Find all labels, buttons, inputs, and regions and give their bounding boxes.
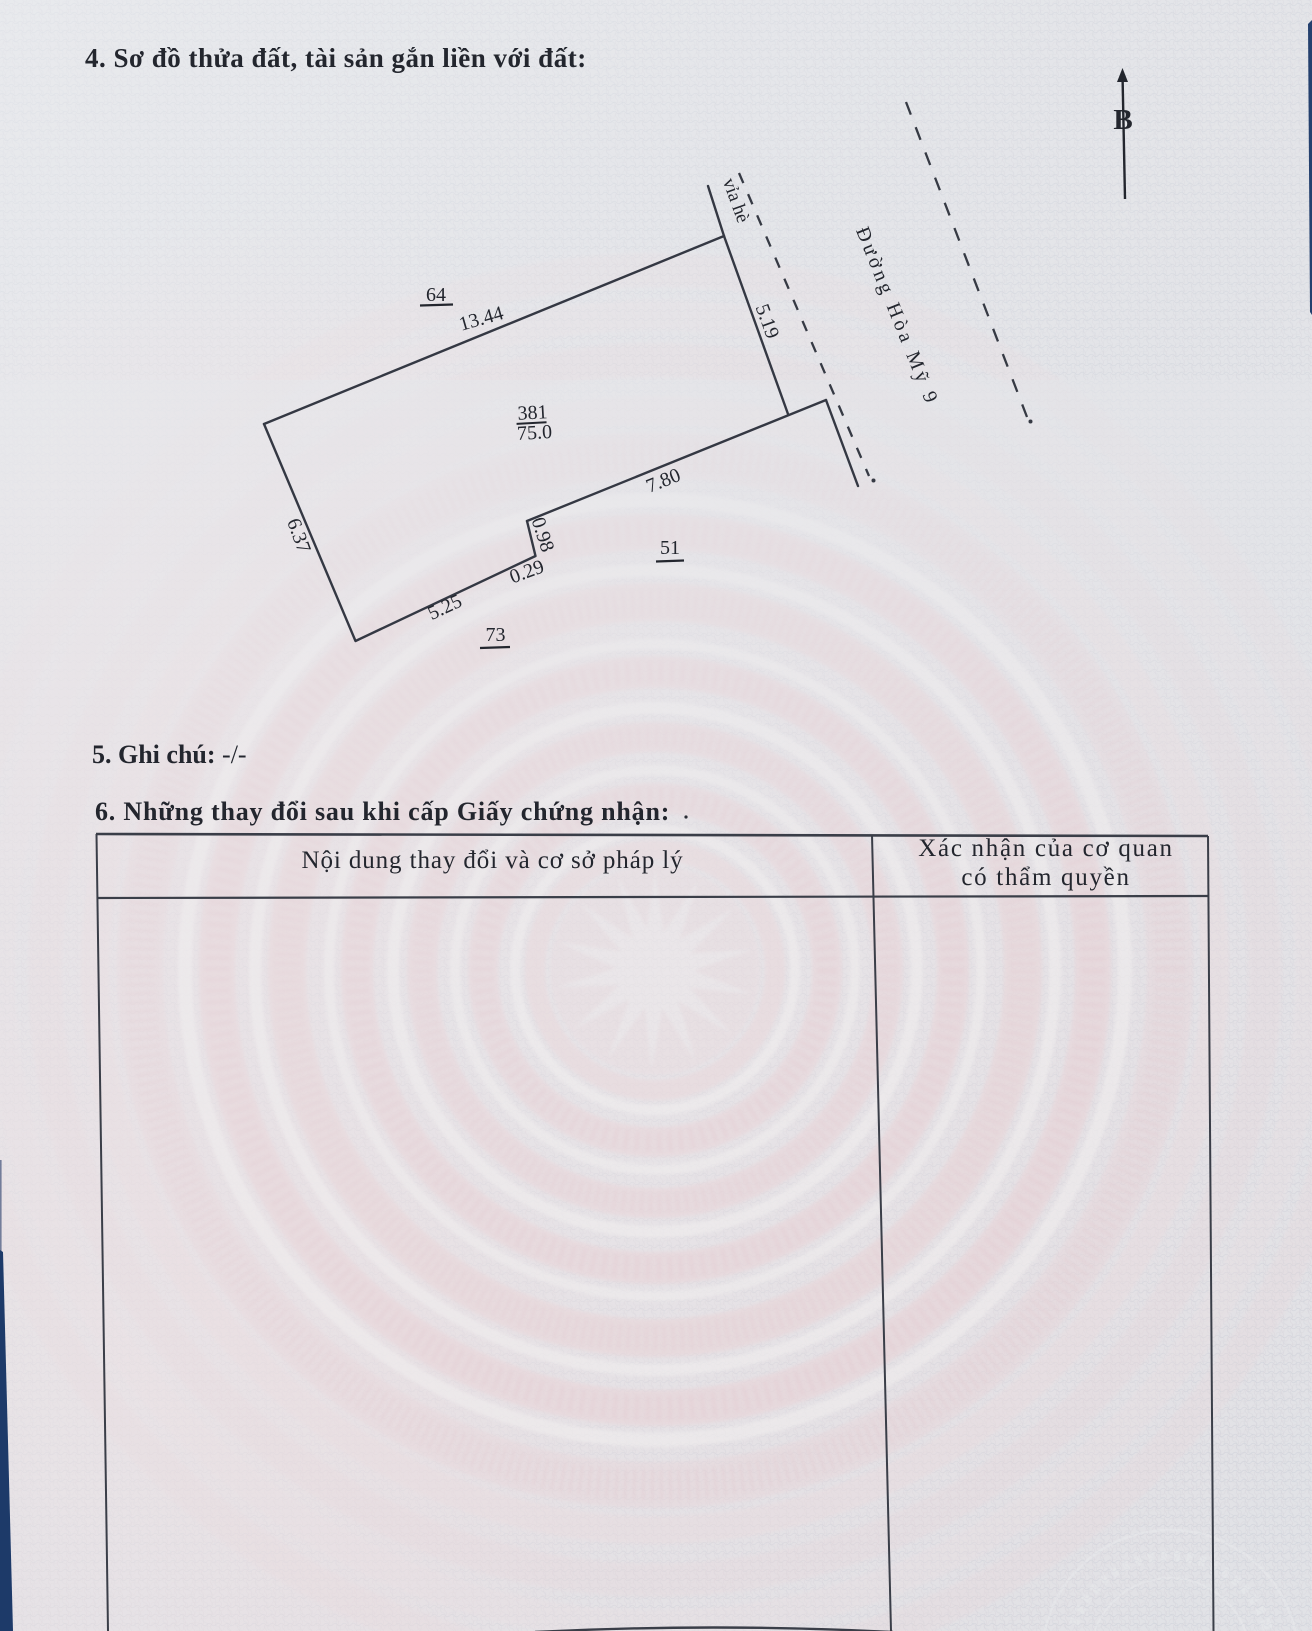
- svg-text:5.25: 5.25: [424, 590, 465, 625]
- svg-text:75.0: 75.0: [517, 421, 553, 445]
- svg-text:7.80: 7.80: [643, 464, 684, 498]
- svg-text:64: 64: [426, 284, 446, 306]
- svg-text:5.19: 5.19: [751, 301, 784, 341]
- svg-text:vỉa hè: vỉa hè: [718, 175, 753, 225]
- svg-text:51: 51: [660, 537, 680, 559]
- svg-text:73: 73: [486, 624, 506, 646]
- svg-text:0.29: 0.29: [507, 556, 547, 589]
- svg-text:B: B: [1113, 104, 1132, 136]
- svg-text:0.98: 0.98: [527, 515, 559, 555]
- svg-text:6.37: 6.37: [282, 515, 315, 555]
- svg-text:Đường Hòa Mỹ 9: Đường Hòa Mỹ 9: [851, 224, 943, 409]
- svg-text:13.44: 13.44: [457, 302, 506, 336]
